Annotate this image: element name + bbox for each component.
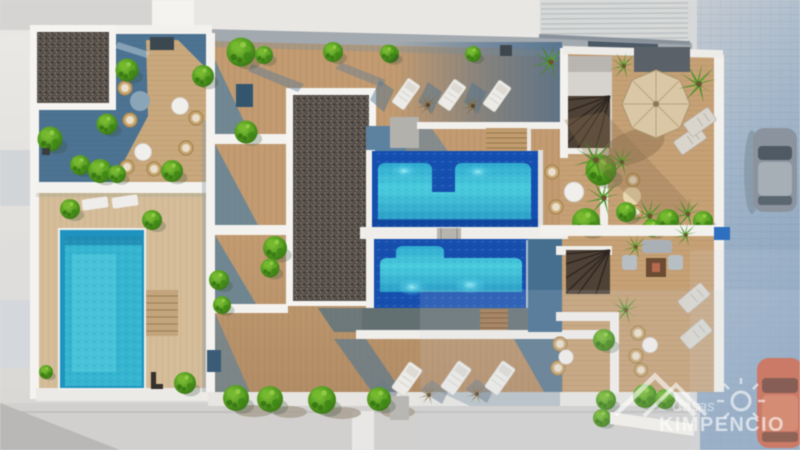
svg-text:Casas: Casas	[672, 398, 715, 415]
svg-text:KIMPENCIO: KIMPENCIO	[659, 414, 785, 436]
